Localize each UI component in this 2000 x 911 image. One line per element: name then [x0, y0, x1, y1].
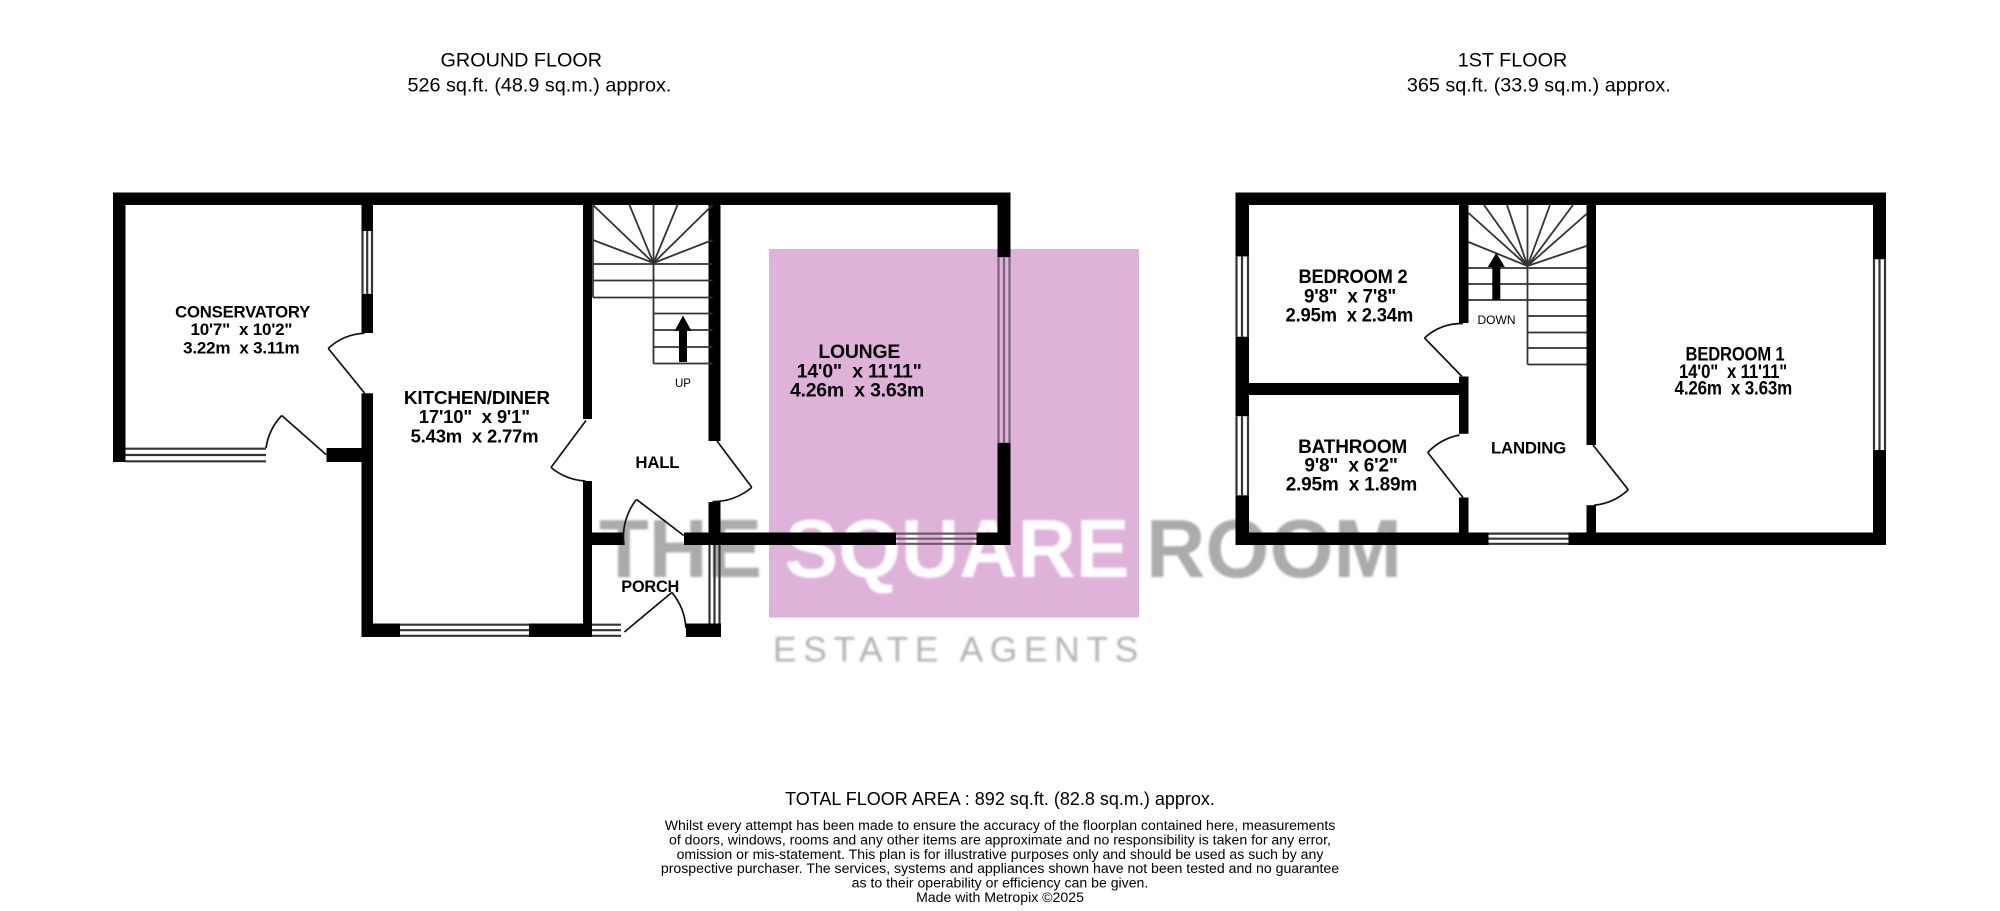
svg-text:TOTAL FLOOR AREA : 892 sq.ft.: TOTAL FLOOR AREA : 892 sq.ft. (82.8 sq.m…: [785, 789, 1215, 809]
svg-text:UP: UP: [675, 378, 691, 390]
svg-text:5.43m x 2.77m: 5.43m x 2.77m: [411, 425, 539, 446]
svg-text:365 sq.ft. (33.9 sq.m.) approx: 365 sq.ft. (33.9 sq.m.) approx.: [1407, 75, 1671, 97]
svg-text:HALL: HALL: [635, 453, 679, 472]
svg-text:KITCHEN/DINER: KITCHEN/DINER: [404, 387, 550, 408]
svg-text:3.22m x 3.11m: 3.22m x 3.11m: [183, 339, 299, 358]
svg-text:9'8" x 6'2": 9'8" x 6'2": [1304, 455, 1397, 476]
svg-text:LANDING: LANDING: [1491, 439, 1566, 458]
svg-text:2.95m x 1.89m: 2.95m x 1.89m: [1286, 474, 1417, 495]
svg-text:ROOM: ROOM: [1146, 502, 1402, 595]
svg-text:1ST FLOOR: 1ST FLOOR: [1458, 50, 1568, 72]
svg-text:ESTATE AGENTS: ESTATE AGENTS: [773, 631, 1138, 670]
svg-text:10'7" x 10'2": 10'7" x 10'2": [191, 320, 293, 339]
svg-text:526 sq.ft. (48.9 sq.m.) approx: 526 sq.ft. (48.9 sq.m.) approx.: [407, 75, 671, 97]
svg-text:4.26m x 3.63m: 4.26m x 3.63m: [1675, 378, 1793, 400]
svg-text:17'10" x 9'1": 17'10" x 9'1": [419, 406, 530, 427]
svg-text:GROUND FLOOR: GROUND FLOOR: [441, 50, 603, 72]
svg-text:Made with Metropix ©2025: Made with Metropix ©2025: [916, 889, 1084, 905]
svg-text:DOWN: DOWN: [1478, 313, 1516, 327]
svg-text:CONSERVATORY: CONSERVATORY: [175, 303, 311, 322]
svg-text:2.95m x 2.34m: 2.95m x 2.34m: [1286, 305, 1414, 327]
svg-text:SQUARE: SQUARE: [785, 502, 1130, 595]
svg-text:4.26m x 3.63m: 4.26m x 3.63m: [790, 380, 924, 402]
svg-text:PORCH: PORCH: [621, 578, 679, 596]
